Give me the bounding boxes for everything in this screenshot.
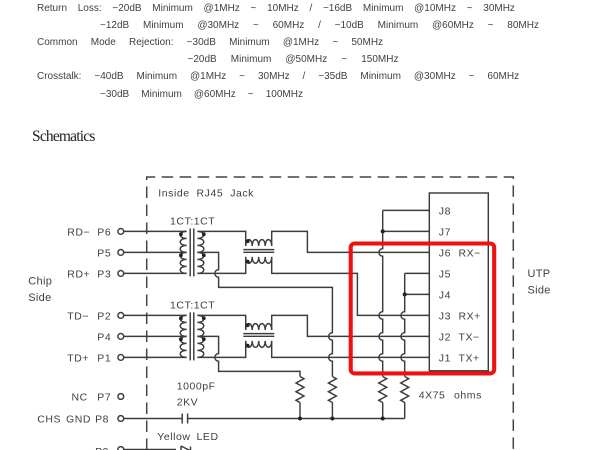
svg-text:J2: J2 xyxy=(439,331,451,343)
svg-text:Side: Side xyxy=(528,285,551,297)
svg-text:J3: J3 xyxy=(439,310,451,322)
svg-text:RX+: RX+ xyxy=(459,310,481,322)
svg-text:J5: J5 xyxy=(439,268,451,280)
svg-text:J7: J7 xyxy=(439,226,451,238)
svg-text:TD−: TD− xyxy=(67,310,89,322)
svg-text:4X75: 4X75 xyxy=(419,389,446,401)
svg-text:P5: P5 xyxy=(97,247,111,259)
svg-text:P6: P6 xyxy=(97,226,111,238)
svg-text:2KV: 2KV xyxy=(177,397,199,409)
svg-text:RD−: RD− xyxy=(67,226,90,238)
svg-text:CHS: CHS xyxy=(37,413,61,425)
svg-text:J4: J4 xyxy=(439,289,451,301)
svg-text:J6: J6 xyxy=(439,247,451,259)
svg-text:GND: GND xyxy=(66,413,91,425)
svg-text:RX−: RX− xyxy=(459,247,481,259)
svg-text:TX+: TX+ xyxy=(459,352,480,364)
svg-text:ohms: ohms xyxy=(454,389,482,401)
svg-text:Inside RJ45 Jack: Inside RJ45 Jack xyxy=(158,188,254,200)
svg-text:P8: P8 xyxy=(95,413,109,425)
svg-text:NC: NC xyxy=(72,391,88,403)
svg-text:P3: P3 xyxy=(97,268,111,280)
svg-text:TD+: TD+ xyxy=(67,352,89,364)
svg-text:UTP: UTP xyxy=(528,268,551,280)
svg-text:Side: Side xyxy=(28,292,51,304)
svg-text:P7: P7 xyxy=(97,391,111,403)
svg-text:Yellow: Yellow xyxy=(157,431,190,443)
svg-text:1000pF: 1000pF xyxy=(177,380,216,392)
svg-text:J8: J8 xyxy=(439,205,451,217)
svg-text:RD+: RD+ xyxy=(67,268,90,280)
svg-text:Chip: Chip xyxy=(28,276,52,288)
svg-text:J1: J1 xyxy=(439,352,451,364)
svg-text:P4: P4 xyxy=(97,331,111,343)
svg-text:1CT:1CT: 1CT:1CT xyxy=(170,216,215,228)
svg-text:1CT:1CT: 1CT:1CT xyxy=(170,300,215,312)
svg-text:LED: LED xyxy=(197,431,219,443)
svg-text:P1: P1 xyxy=(97,352,111,364)
svg-text:TX−: TX− xyxy=(459,331,480,343)
svg-text:P2: P2 xyxy=(97,310,111,322)
svg-text:P9: P9 xyxy=(95,446,109,450)
